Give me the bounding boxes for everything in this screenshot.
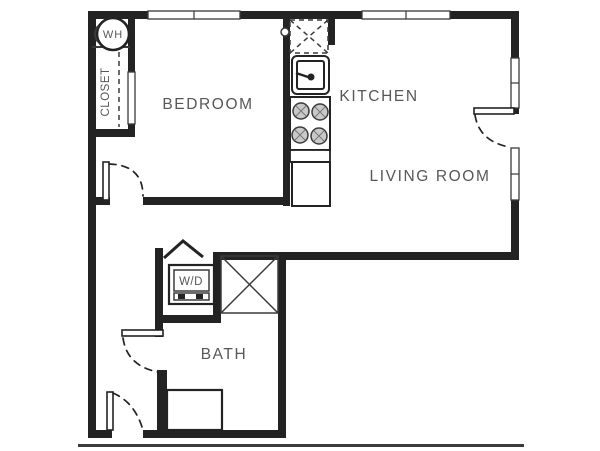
exterior-door-swing-arc — [113, 393, 142, 427]
bedroom-door-leaf — [103, 162, 109, 200]
bath-fixtures: W/D — [167, 256, 278, 430]
upper-cabinet-dashed-x — [290, 20, 328, 53]
stove-front-panel — [290, 150, 330, 162]
exterior-wall-right-upper — [511, 11, 519, 59]
shower-box-x-mark — [221, 256, 278, 313]
exterior-door-leaf — [107, 392, 113, 430]
bottom-wall-main-segment — [143, 430, 286, 438]
laundry-closet-bottom-wall — [155, 315, 221, 323]
bedroom-door-swing-arc — [109, 164, 143, 196]
kitchen-stub-wall — [328, 19, 335, 45]
floor-plan: WH CLOSET W/D BEDRO — [0, 0, 600, 451]
floor-plan-canvas: WH CLOSET W/D BEDRO — [0, 0, 600, 451]
washer-dryer-foot — [178, 294, 185, 299]
bath-right-wall — [278, 252, 286, 438]
sink-faucet — [308, 74, 315, 81]
cabinet-knob-mark — [281, 28, 289, 36]
bath-left-lower-wall — [157, 370, 167, 438]
washer-dryer-label: W/D — [179, 276, 203, 288]
washer-dryer-foot — [196, 294, 203, 299]
kitchen-lower-counter — [292, 162, 330, 206]
upper-cabinet-dashed-box — [290, 20, 328, 53]
bath-door-leaf — [122, 330, 163, 336]
bedroom-bottom-wall — [143, 197, 290, 205]
bathtub — [167, 390, 222, 430]
bedroom-kitchen-divider-wall — [283, 11, 290, 206]
laundry-bifold-door — [164, 241, 203, 258]
kitchen-label: KITCHEN — [339, 88, 418, 105]
living-room-label: LIVING ROOM — [370, 168, 491, 185]
closet-bottom-wall — [88, 129, 135, 137]
exterior-wall-left — [88, 11, 96, 438]
bath-door-swing-arc — [123, 338, 158, 372]
closet-door-panel — [128, 72, 135, 124]
patio-edge-line — [78, 444, 524, 447]
closet-label: CLOSET — [100, 67, 112, 116]
entry-door-swing-arc — [475, 115, 509, 147]
laundry-closet-left-wall — [155, 248, 163, 337]
exterior-wall-right-lower — [511, 200, 519, 260]
bottom-wall-left-segment — [88, 430, 112, 438]
water-heater-label: WH — [103, 29, 123, 41]
entry-door-leaf — [474, 108, 514, 114]
bath-label: BATH — [201, 346, 248, 363]
water-heater-closet: WH CLOSET — [95, 18, 129, 127]
bedroom-label: BEDROOM — [162, 96, 253, 113]
